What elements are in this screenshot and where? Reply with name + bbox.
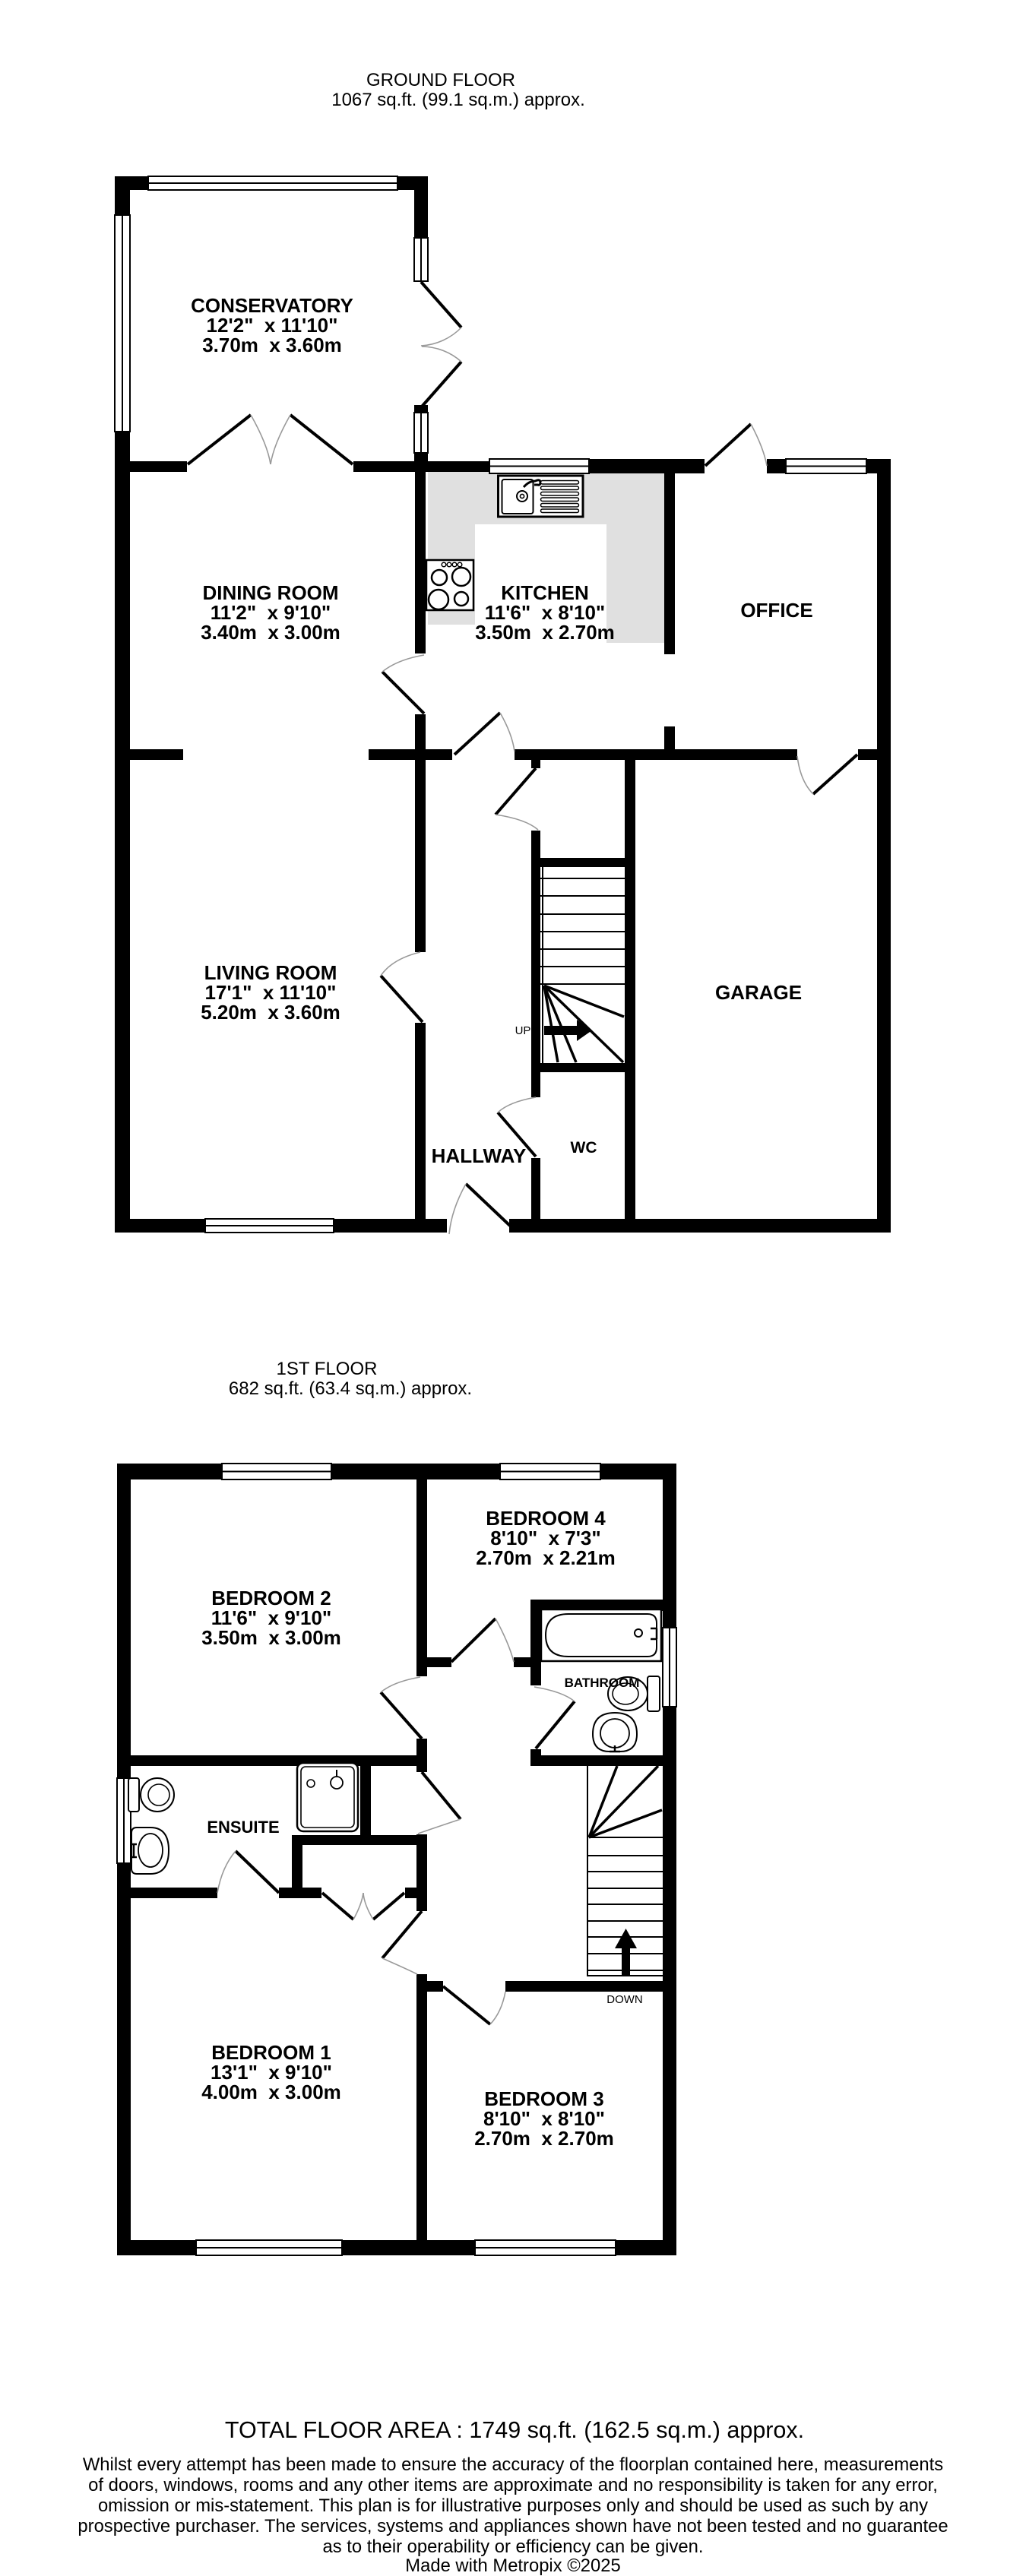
svg-text:3.50m x 3.00m: 3.50m x 3.00m: [201, 1626, 341, 1649]
svg-text:1ST FLOOR: 1ST FLOOR: [277, 1359, 378, 1379]
svg-text:OFFICE: OFFICE: [740, 599, 812, 622]
svg-text:682 sq.ft. (63.4 sq.m.) approx: 682 sq.ft. (63.4 sq.m.) approx.: [229, 1378, 472, 1399]
svg-text:1067 sq.ft. (99.1 sq.m.) appro: 1067 sq.ft. (99.1 sq.m.) approx.: [331, 90, 585, 110]
svg-text:2.70m x 2.70m: 2.70m x 2.70m: [474, 2127, 614, 2150]
svg-text:2.70m x 2.21m: 2.70m x 2.21m: [476, 1546, 616, 1569]
svg-text:Made with Metropix ©2025: Made with Metropix ©2025: [405, 2555, 620, 2576]
svg-text:as to their operability or eff: as to their operability or efficiency ca…: [323, 2536, 704, 2557]
svg-text:GROUND FLOOR: GROUND FLOOR: [366, 70, 515, 90]
svg-text:3.70m x 3.60m: 3.70m x 3.60m: [202, 334, 342, 356]
svg-text:UP: UP: [515, 1024, 531, 1037]
svg-text:GARAGE: GARAGE: [715, 981, 802, 1004]
svg-text:BATHROOM: BATHROOM: [565, 1676, 640, 1690]
svg-text:4.00m x 3.00m: 4.00m x 3.00m: [201, 2081, 341, 2103]
svg-text:DOWN: DOWN: [606, 1993, 643, 2006]
svg-text:5.20m x 3.60m: 5.20m x 3.60m: [201, 1001, 340, 1024]
svg-text:of doors, windows, rooms and a: of doors, windows, rooms and any other i…: [88, 2475, 938, 2495]
svg-text:prospective purchaser. The ser: prospective purchaser. The services, sys…: [78, 2516, 948, 2536]
svg-text:Whilst every attempt has been: Whilst every attempt has been made to en…: [83, 2454, 943, 2475]
svg-text:WC: WC: [571, 1139, 597, 1157]
svg-text:3.40m x 3.00m: 3.40m x 3.00m: [201, 621, 340, 644]
svg-text:TOTAL FLOOR AREA : 1749 sq.ft.: TOTAL FLOOR AREA : 1749 sq.ft. (162.5 sq…: [225, 2417, 804, 2443]
svg-text:HALLWAY: HALLWAY: [432, 1144, 527, 1167]
svg-text:omission or mis-statement. Thi: omission or mis-statement. This plan is …: [98, 2495, 928, 2516]
svg-text:ENSUITE: ENSUITE: [207, 1818, 279, 1837]
svg-text:3.50m x 2.70m: 3.50m x 2.70m: [475, 621, 615, 644]
